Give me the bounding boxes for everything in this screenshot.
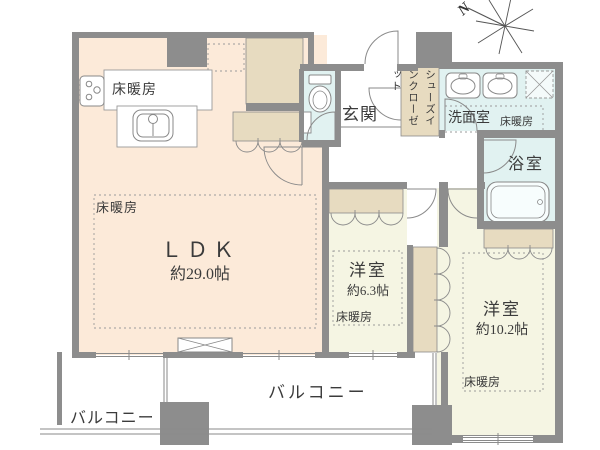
bedroom2-size-label: 約10.2帖 <box>460 319 544 339</box>
wall <box>439 182 448 247</box>
closet-north <box>246 38 303 104</box>
wall <box>439 62 563 69</box>
wall <box>477 130 563 138</box>
kitchen-floor-heating-label: 床暖房 <box>112 79 157 99</box>
ldk-floor-heating-label: 床暖房 <box>96 197 138 216</box>
bedroom2-closet-top <box>484 229 553 248</box>
bedroom1-floor-heating-label: 床暖房 <box>336 308 372 325</box>
pillar <box>160 402 209 445</box>
compass-north-label: N <box>454 0 474 20</box>
washroom-label: 洗面室 <box>448 107 490 127</box>
wall <box>300 64 364 71</box>
balcony-partition <box>164 353 167 402</box>
bathtub-icon <box>487 182 549 222</box>
wall <box>163 352 243 358</box>
wall <box>315 352 349 358</box>
entrance-label: 玄関 <box>342 100 378 125</box>
balcony-partition <box>433 353 436 405</box>
wall <box>246 103 303 111</box>
bedroom2-name-label: 洋室 <box>462 295 542 320</box>
bedroom2-closet-side <box>413 247 437 352</box>
balcony-edge <box>40 429 432 434</box>
bathroom-label: 浴室 <box>508 150 544 174</box>
stove-icon <box>77 76 104 106</box>
balcony-left-label: バルコニー <box>70 404 155 428</box>
duct-space <box>167 38 207 67</box>
bedroom1-door <box>407 189 436 218</box>
wall <box>72 32 314 38</box>
washing-machine-icon <box>526 71 553 98</box>
ldk-size-label: 約29.0帖 <box>153 260 247 284</box>
shoe-closet-label: シューズインクローゼット <box>404 69 438 135</box>
floor-plan: N 床暖房 床暖房 ＬＤＫ 約29.0帖 洋室 約6.3帖 床暖房 洋室 約10… <box>0 0 600 450</box>
toilet-icon <box>309 75 331 112</box>
wall <box>72 352 96 358</box>
wall <box>335 67 341 147</box>
balcony-wall <box>57 352 62 425</box>
shutter-box <box>178 338 232 352</box>
wall <box>322 147 329 352</box>
balcony-main-label: バルコニー <box>268 378 368 403</box>
bedroom1-name-label: 洋室 <box>328 256 408 281</box>
wall <box>477 137 484 223</box>
wall <box>72 32 79 358</box>
bedroom1-size-label: 約6.3帖 <box>328 280 408 299</box>
compass-icon: N <box>454 0 534 54</box>
front-door <box>365 31 398 64</box>
washroom-floor-heating-label: 床暖房 <box>500 113 533 129</box>
pillar <box>412 405 452 445</box>
bedroom2-floor-heating-label: 床暖房 <box>464 373 500 390</box>
wall <box>322 182 407 189</box>
closet-hall <box>233 112 303 141</box>
wall <box>397 352 415 358</box>
wall <box>555 62 563 443</box>
bedroom1-closet <box>329 189 403 213</box>
wall <box>439 130 445 138</box>
wall <box>477 221 563 229</box>
wall <box>302 140 341 147</box>
